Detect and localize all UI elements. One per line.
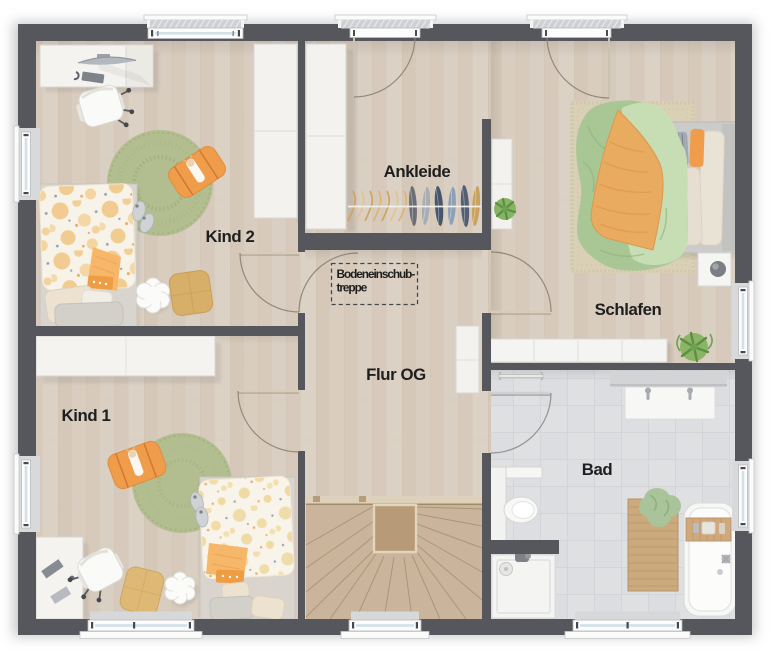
svg-text:Bad: Bad — [582, 460, 613, 479]
svg-text:Kind 2: Kind 2 — [206, 227, 255, 246]
svg-text:treppe: treppe — [337, 281, 368, 295]
svg-text:Schlafen: Schlafen — [595, 300, 662, 319]
svg-text:Kind 1: Kind 1 — [62, 406, 111, 425]
svg-text:Ankleide: Ankleide — [384, 162, 451, 181]
svg-text:Flur OG: Flur OG — [366, 365, 426, 384]
svg-text:Bodeneinschub-: Bodeneinschub- — [337, 267, 416, 281]
